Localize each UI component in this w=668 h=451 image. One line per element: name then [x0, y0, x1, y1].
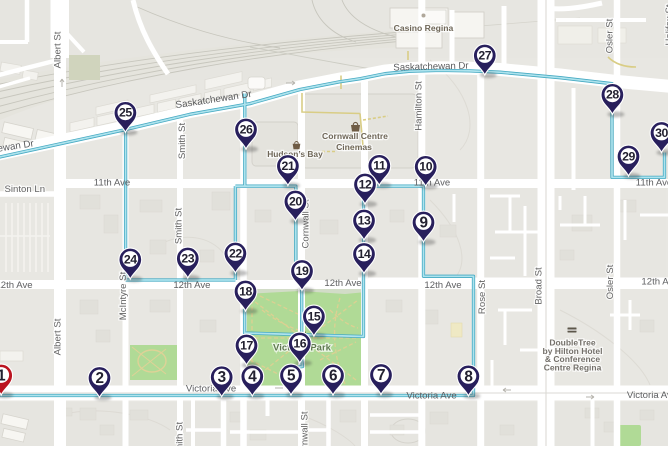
svg-text:Osler St: Osler St: [605, 264, 616, 299]
svg-text:Osler St: Osler St: [605, 18, 616, 53]
svg-text:Sinton Ln: Sinton Ln: [5, 184, 46, 195]
svg-text:9: 9: [419, 215, 427, 232]
svg-text:12th Ave: 12th Ave: [424, 280, 461, 291]
svg-text:12th Ave: 12th Ave: [0, 280, 33, 291]
svg-text:29: 29: [622, 149, 635, 163]
svg-text:4: 4: [248, 369, 257, 386]
svg-text:10: 10: [419, 160, 432, 174]
svg-text:5: 5: [287, 368, 296, 385]
svg-text:28: 28: [606, 88, 619, 102]
svg-text:Victoria Ave: Victoria Ave: [406, 391, 456, 402]
svg-text:Cinemas: Cinemas: [336, 142, 372, 152]
svg-text:27: 27: [478, 48, 491, 62]
svg-text:Centre Regina: Centre Regina: [544, 363, 602, 373]
svg-text:11th Ave: 11th Ave: [636, 178, 668, 189]
svg-text:15: 15: [307, 309, 320, 323]
svg-text:Smith St: Smith St: [177, 123, 188, 160]
svg-text:25: 25: [119, 106, 132, 120]
svg-text:6: 6: [329, 368, 337, 385]
svg-text:Albert St: Albert St: [53, 31, 64, 68]
svg-text:Victoria Ave: Victoria Ave: [627, 390, 668, 401]
svg-text:20: 20: [289, 194, 302, 208]
svg-text:18: 18: [239, 284, 252, 298]
svg-text:22: 22: [229, 246, 242, 260]
svg-text:Hamilton St: Hamilton St: [414, 81, 425, 131]
svg-text:26: 26: [240, 122, 253, 136]
svg-text:Casino Regina: Casino Regina: [394, 23, 454, 33]
svg-text:12th Ave: 12th Ave: [641, 277, 668, 288]
svg-text:Albert St: Albert St: [53, 318, 64, 355]
svg-text:12: 12: [359, 177, 372, 191]
svg-text:7: 7: [377, 367, 385, 384]
svg-text:8: 8: [464, 368, 473, 385]
svg-text:Smith St: Smith St: [175, 422, 186, 446]
svg-text:13: 13: [358, 213, 371, 227]
svg-text:Rose St: Rose St: [477, 280, 488, 314]
svg-text:21: 21: [281, 159, 294, 173]
svg-text:30: 30: [655, 126, 668, 140]
svg-text:14: 14: [358, 247, 371, 261]
svg-text:12th Ave: 12th Ave: [173, 280, 210, 291]
svg-text:23: 23: [181, 251, 194, 265]
svg-text:16: 16: [293, 336, 306, 350]
svg-text:3: 3: [218, 369, 226, 386]
svg-text:Cornwall Centre: Cornwall Centre: [322, 131, 388, 141]
svg-text:1: 1: [0, 368, 6, 385]
svg-text:17: 17: [240, 338, 253, 352]
svg-text:24: 24: [124, 252, 137, 266]
svg-text:11th Ave: 11th Ave: [94, 178, 130, 189]
svg-text:12th Ave: 12th Ave: [324, 278, 361, 289]
svg-text:Saskatchewan Dr: Saskatchewan Dr: [393, 60, 469, 73]
svg-text:Halifax St: Halifax St: [664, 4, 668, 45]
svg-text:Cornwall St: Cornwall St: [300, 411, 311, 446]
svg-text:Broad St: Broad St: [534, 267, 545, 305]
svg-text:19: 19: [296, 264, 309, 278]
svg-text:11: 11: [373, 159, 386, 173]
svg-text:2: 2: [95, 370, 103, 387]
svg-text:Smith St: Smith St: [174, 208, 185, 245]
